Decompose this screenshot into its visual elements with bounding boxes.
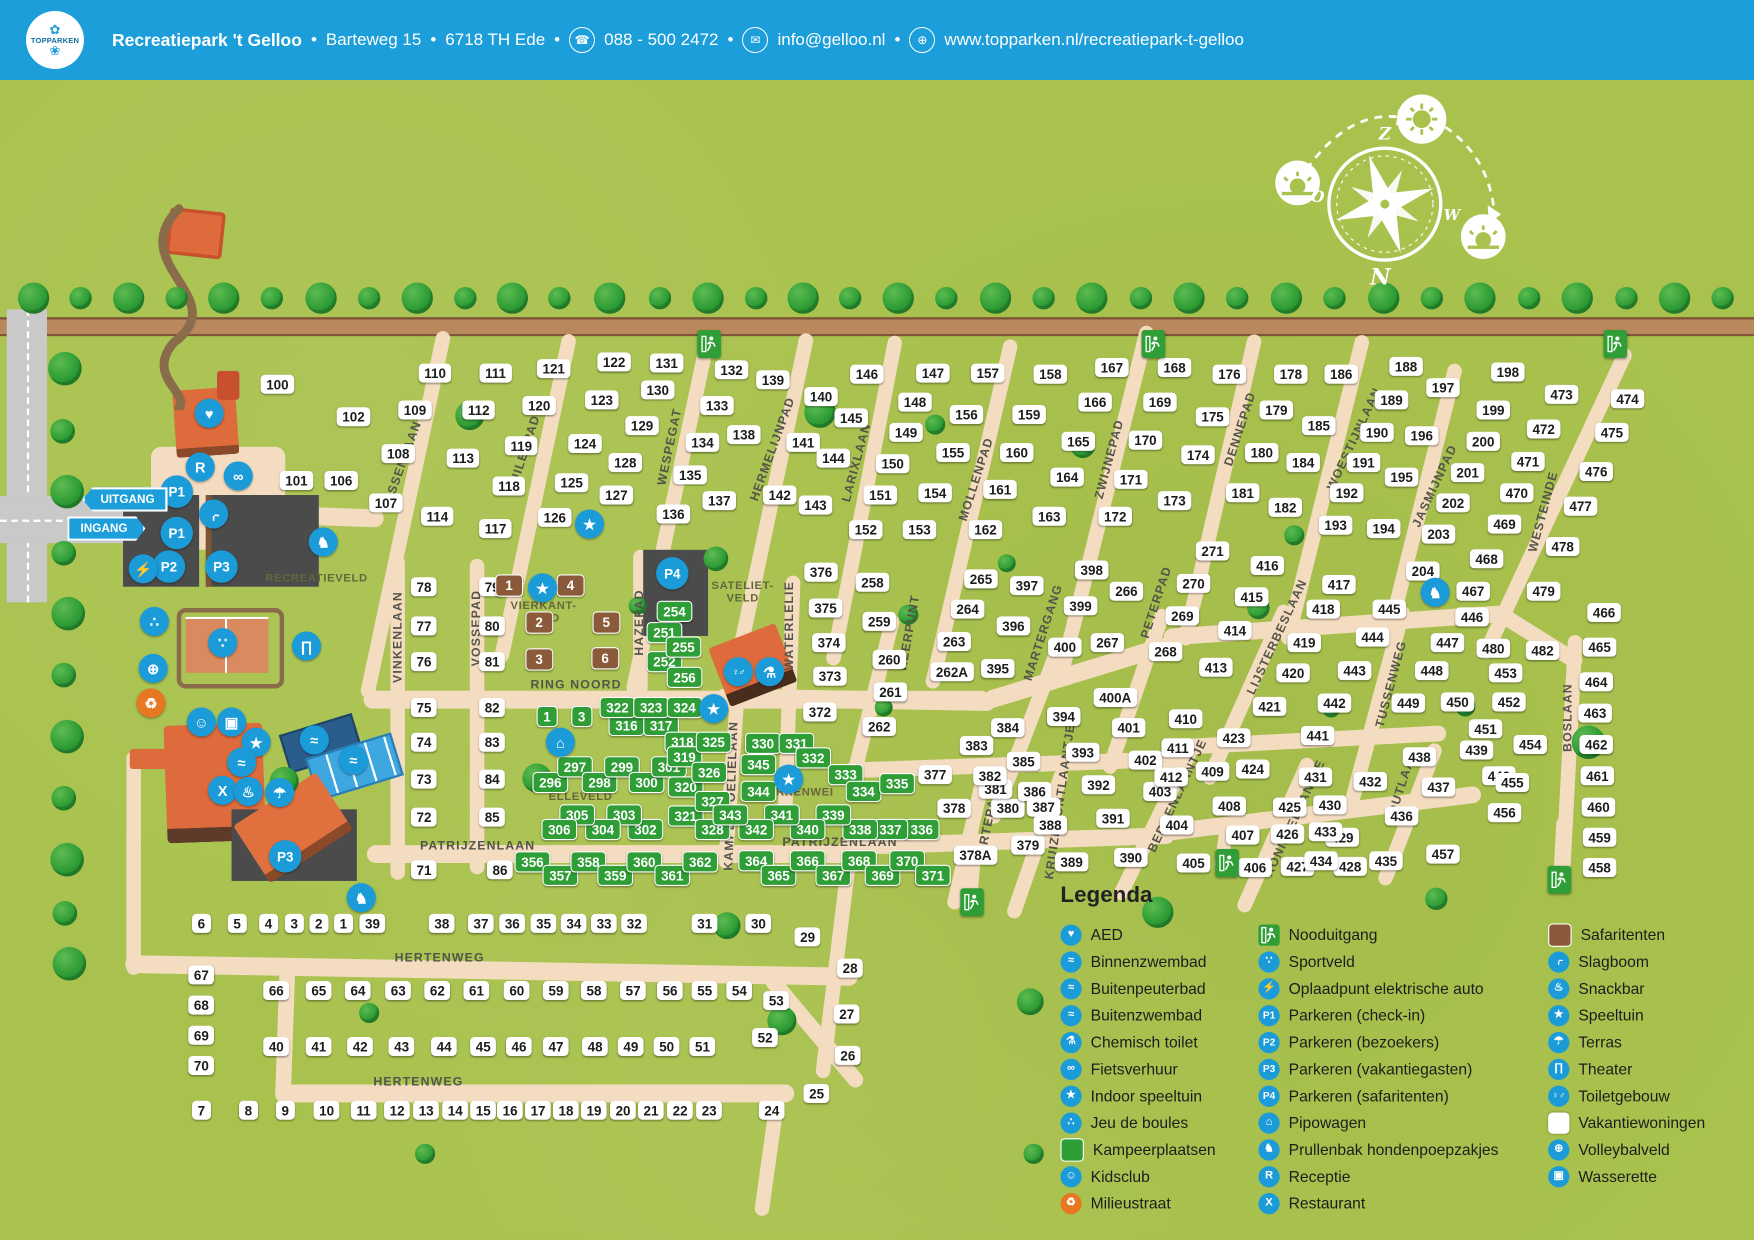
plot-24: 24 bbox=[759, 1101, 785, 1120]
legend-pipowagen-icon: ⌂ bbox=[1258, 1112, 1279, 1133]
legend-label: Parkeren (bezoekers) bbox=[1289, 1033, 1440, 1051]
road-segment bbox=[126, 751, 141, 975]
plot-413: 413 bbox=[1199, 658, 1233, 677]
plot-40: 40 bbox=[263, 1037, 289, 1056]
plot-61: 61 bbox=[463, 981, 489, 1000]
plot-176: 176 bbox=[1213, 365, 1247, 384]
legend-column-3: Safaritenten⌌Slagboom♨Snackbar★Speeltuin… bbox=[1548, 921, 1705, 1189]
plot-165: 165 bbox=[1062, 432, 1096, 451]
plot-43: 43 bbox=[389, 1037, 415, 1056]
plot-267: 267 bbox=[1091, 633, 1125, 652]
nooduitgang-icon bbox=[1215, 849, 1238, 877]
plot-462: 462 bbox=[1579, 735, 1613, 754]
plot-421: 421 bbox=[1253, 697, 1287, 716]
plot-22: 22 bbox=[667, 1101, 693, 1120]
binnenzwembad-icon: ≈ bbox=[227, 748, 256, 777]
tree-icon bbox=[51, 663, 76, 688]
plot-127: 127 bbox=[600, 485, 634, 504]
nooduitgang-icon bbox=[1604, 330, 1627, 358]
header-contact-line: Recreatiepark 't Gelloo • Barteweg 15 • … bbox=[112, 27, 1244, 53]
plot-375: 375 bbox=[809, 598, 843, 617]
plot-433: 433 bbox=[1309, 822, 1343, 841]
plot-344: 344 bbox=[740, 781, 776, 802]
plot-42: 42 bbox=[347, 1037, 373, 1056]
tree-icon bbox=[53, 947, 87, 981]
tree-icon bbox=[1024, 1144, 1044, 1164]
plot-147: 147 bbox=[916, 364, 950, 383]
legend-label: Volleybalveld bbox=[1578, 1140, 1669, 1158]
plot-2: 2 bbox=[309, 914, 328, 933]
legend-item-aed: ♥AED bbox=[1060, 921, 1215, 948]
plot-48: 48 bbox=[582, 1037, 608, 1056]
plot-330: 330 bbox=[745, 733, 781, 754]
plot-107: 107 bbox=[369, 493, 403, 512]
plot-150: 150 bbox=[876, 454, 910, 473]
legend-item-slagboom: ⌌Slagboom bbox=[1548, 948, 1705, 975]
plot-73: 73 bbox=[411, 770, 437, 789]
legend-parkeren-bezoekers--icon: P2 bbox=[1258, 1031, 1279, 1052]
plot-19: 19 bbox=[581, 1101, 607, 1120]
plot-416: 416 bbox=[1251, 556, 1285, 575]
plot-164: 164 bbox=[1050, 468, 1084, 487]
legend-item-parkeren-safaritenten-: P4Parkeren (safaritenten) bbox=[1258, 1082, 1498, 1109]
legend-label: Slagboom bbox=[1578, 953, 1649, 971]
plot-405: 405 bbox=[1177, 854, 1211, 873]
park-map: Z N O W UITGANG INGANG DASSENLAANUILENPA… bbox=[0, 80, 1754, 1240]
tree-icon bbox=[358, 287, 380, 309]
plot-390: 390 bbox=[1114, 848, 1148, 867]
plot-324: 324 bbox=[667, 697, 703, 718]
legend-label: Buitenzwembad bbox=[1091, 1006, 1202, 1024]
legend-label: Milieustraat bbox=[1091, 1194, 1171, 1212]
plot-263: 263 bbox=[937, 632, 971, 651]
plot-406: 406 bbox=[1238, 858, 1272, 877]
legend-label: Vakantiewoningen bbox=[1578, 1114, 1705, 1132]
legend-label: Indoor speeltuin bbox=[1091, 1087, 1202, 1105]
legend-prullenbak-hondenpoepzakjes-icon: ♞ bbox=[1258, 1139, 1279, 1160]
street-label-hertenweg: HERTENWEG bbox=[395, 951, 485, 964]
plot-100: 100 bbox=[261, 375, 295, 394]
plot-455: 455 bbox=[1496, 773, 1530, 792]
park-postal-city: 6718 TH Ede bbox=[445, 30, 545, 50]
plot-18: 18 bbox=[553, 1101, 579, 1120]
legend-column-1: ♥AED≈Binnenzwembad≈Buitenpeuterbad≈Buite… bbox=[1060, 921, 1215, 1216]
plot-36: 36 bbox=[499, 914, 525, 933]
plot-182: 182 bbox=[1268, 498, 1302, 517]
plot-203: 203 bbox=[1422, 525, 1456, 544]
plot-81: 81 bbox=[479, 652, 505, 671]
plot-53: 53 bbox=[763, 991, 789, 1010]
plot-3: 3 bbox=[285, 914, 304, 933]
road-segment bbox=[280, 1085, 795, 1103]
plot-259: 259 bbox=[862, 612, 896, 631]
slagboom-icon: ⌌ bbox=[199, 499, 228, 528]
plot-153: 153 bbox=[903, 520, 937, 539]
plot-52: 52 bbox=[752, 1028, 778, 1047]
plot-410: 410 bbox=[1169, 709, 1203, 728]
tree-icon bbox=[704, 546, 729, 571]
compass-rose: Z N O W bbox=[1311, 123, 1462, 290]
plot-385: 385 bbox=[1007, 752, 1041, 771]
plot-411: 411 bbox=[1161, 738, 1194, 757]
legend-item-nooduitgang: Nooduitgang bbox=[1258, 921, 1498, 948]
plot-456: 456 bbox=[1488, 803, 1522, 822]
legend-label: Sportveld bbox=[1289, 953, 1355, 971]
tree-icon bbox=[454, 287, 476, 309]
legend-label: Speeltuin bbox=[1578, 1006, 1643, 1024]
plot-68: 68 bbox=[188, 996, 214, 1015]
plot-82: 82 bbox=[479, 698, 505, 717]
plot-479: 479 bbox=[1527, 582, 1561, 601]
legend-label: Parkeren (check-in) bbox=[1289, 1006, 1426, 1024]
plot-184: 184 bbox=[1286, 453, 1320, 472]
park-website[interactable]: www.topparken.nl/recreatiepark-t-gelloo bbox=[944, 30, 1244, 50]
tree-icon bbox=[1284, 525, 1304, 545]
plot-77: 77 bbox=[411, 616, 437, 635]
plot-6: 6 bbox=[591, 647, 619, 669]
plot-325: 325 bbox=[696, 732, 732, 753]
tree-icon bbox=[18, 282, 49, 313]
plot-59: 59 bbox=[543, 981, 569, 1000]
plot-468: 468 bbox=[1470, 549, 1504, 568]
speeltuin-icon: ★ bbox=[575, 510, 604, 539]
plot-379: 379 bbox=[1011, 836, 1045, 855]
plot-102: 102 bbox=[337, 407, 371, 426]
plot-29: 29 bbox=[795, 927, 821, 946]
plot-426: 426 bbox=[1271, 824, 1305, 843]
plot-108: 108 bbox=[381, 444, 415, 463]
plot-262: 262 bbox=[862, 717, 896, 736]
plot-85: 85 bbox=[479, 808, 505, 827]
plot-20: 20 bbox=[610, 1101, 636, 1120]
toiletgebouw-icon: ♀♂ bbox=[724, 657, 753, 686]
legend-slagboom-icon: ⌌ bbox=[1548, 951, 1569, 972]
legend-item-fietsverhuur: ∞Fietsverhuur bbox=[1060, 1055, 1215, 1082]
plot-414: 414 bbox=[1218, 621, 1252, 640]
plot-374: 374 bbox=[812, 633, 846, 652]
legend-item-volleybalveld: ⊕Volleybalveld bbox=[1548, 1136, 1705, 1163]
legend-kampeerplaatsen-icon bbox=[1060, 1138, 1083, 1161]
plot-432: 432 bbox=[1353, 772, 1387, 791]
plot-110: 110 bbox=[419, 364, 452, 383]
tree-icon bbox=[935, 287, 957, 309]
plot-46: 46 bbox=[506, 1037, 532, 1056]
plot-336: 336 bbox=[904, 819, 940, 840]
plot-170: 170 bbox=[1129, 431, 1163, 450]
nooduitgang-icon bbox=[960, 888, 983, 916]
plot-372: 372 bbox=[803, 703, 837, 722]
phone-icon: ☎ bbox=[569, 27, 595, 53]
plot-430: 430 bbox=[1313, 795, 1347, 814]
plot-400: 400 bbox=[1048, 638, 1082, 657]
plot-51: 51 bbox=[689, 1037, 715, 1056]
legend-item-parkeren-check-in-: P1Parkeren (check-in) bbox=[1258, 1002, 1498, 1029]
plot-120: 120 bbox=[522, 396, 556, 415]
aed-icon: ♥ bbox=[195, 399, 224, 428]
legend-label: Parkeren (vakantiegasten) bbox=[1289, 1060, 1473, 1078]
street-label-hertenweg: HERTENWEG bbox=[373, 1076, 463, 1089]
plot-7: 7 bbox=[192, 1101, 211, 1120]
legend-label: Prullenbak hondenpoepzakjes bbox=[1289, 1140, 1499, 1158]
plot-425: 425 bbox=[1273, 798, 1307, 817]
plot-3: 3 bbox=[525, 648, 553, 670]
plot-55: 55 bbox=[692, 981, 718, 1000]
park-address: Barteweg 15 bbox=[326, 30, 421, 50]
plot-114: 114 bbox=[421, 507, 454, 526]
plot-180: 180 bbox=[1245, 443, 1279, 462]
plot-146: 146 bbox=[850, 365, 884, 384]
plot-60: 60 bbox=[504, 981, 530, 1000]
header-bar: ✿ TOPPARKEN ❀ Recreatiepark 't Gelloo • … bbox=[0, 0, 1754, 80]
plot-449: 449 bbox=[1392, 694, 1426, 713]
sportveld-icon: ∵ bbox=[208, 628, 237, 657]
legend-label: Restaurant bbox=[1289, 1194, 1366, 1212]
tree-icon bbox=[1173, 282, 1204, 313]
plot-452: 452 bbox=[1492, 692, 1526, 711]
plot-13: 13 bbox=[413, 1101, 439, 1120]
plot-394: 394 bbox=[1047, 707, 1081, 726]
plot-186: 186 bbox=[1324, 365, 1358, 384]
tree-icon bbox=[714, 912, 741, 939]
plot-122: 122 bbox=[597, 352, 631, 371]
plot-464: 464 bbox=[1579, 672, 1613, 691]
tree-icon bbox=[166, 287, 188, 309]
legend-indoor-speeltuin-icon: ★ bbox=[1060, 1085, 1081, 1106]
logo-mark-top: ✿ bbox=[50, 25, 61, 35]
tree-icon bbox=[594, 282, 625, 313]
plot-459: 459 bbox=[1583, 828, 1617, 847]
plot-201: 201 bbox=[1451, 463, 1485, 482]
legend-speeltuin-icon: ★ bbox=[1548, 1005, 1569, 1026]
plot-157: 157 bbox=[971, 364, 1005, 383]
legend-item-oplaadpunt-elektrische-auto: ⚡Oplaadpunt elektrische auto bbox=[1258, 975, 1498, 1002]
plot-10: 10 bbox=[314, 1101, 340, 1120]
nooduitgang-icon bbox=[1142, 330, 1165, 358]
legend-item-restaurant: XRestaurant bbox=[1258, 1190, 1498, 1217]
plot-190: 190 bbox=[1360, 423, 1394, 442]
plot-75: 75 bbox=[411, 698, 437, 717]
plot-71: 71 bbox=[411, 860, 437, 879]
plot-447: 447 bbox=[1431, 633, 1465, 652]
plot-269: 269 bbox=[1166, 606, 1200, 625]
tree-icon bbox=[402, 282, 433, 313]
plot-31: 31 bbox=[692, 914, 718, 933]
volleybalveld-icon: ⊕ bbox=[139, 654, 168, 683]
receptie-icon: R bbox=[186, 452, 215, 481]
plot-397: 397 bbox=[1010, 576, 1044, 595]
plot-171: 171 bbox=[1114, 470, 1148, 489]
plot-136: 136 bbox=[657, 505, 691, 524]
plot-450: 450 bbox=[1441, 692, 1475, 711]
buitenzwembad-icon: ≈ bbox=[339, 746, 368, 775]
legend-item-safaritenten: Safaritenten bbox=[1548, 921, 1705, 948]
plot-409: 409 bbox=[1196, 762, 1230, 781]
legend-item-speeltuin: ★Speeltuin bbox=[1548, 1002, 1705, 1029]
tree-icon bbox=[305, 282, 336, 313]
speeltuin-icon: ★ bbox=[528, 573, 557, 602]
legend-label: Fietsverhuur bbox=[1091, 1060, 1178, 1078]
compass-sun-graphic: Z N O W bbox=[1219, 80, 1745, 326]
tree-icon bbox=[649, 287, 671, 309]
plot-362: 362 bbox=[682, 851, 718, 872]
plot-467: 467 bbox=[1456, 582, 1490, 601]
plot-119: 119 bbox=[505, 436, 538, 455]
legend-chemisch-toilet-icon: ⚗ bbox=[1060, 1031, 1081, 1052]
tree-icon bbox=[839, 287, 861, 309]
plot-123: 123 bbox=[585, 390, 619, 409]
plot-345: 345 bbox=[740, 754, 776, 775]
plot-78: 78 bbox=[411, 577, 437, 596]
legend-label: Snackbar bbox=[1578, 979, 1644, 997]
plot-57: 57 bbox=[620, 981, 646, 1000]
plot-266: 266 bbox=[1110, 582, 1144, 601]
tree-icon bbox=[1130, 287, 1152, 309]
plot-8: 8 bbox=[239, 1101, 258, 1120]
plot-138: 138 bbox=[727, 425, 761, 444]
plot-438: 438 bbox=[1403, 747, 1437, 766]
plot-306: 306 bbox=[541, 819, 577, 840]
legend-buitenpeuterbad-icon: ≈ bbox=[1060, 978, 1081, 999]
plot-137: 137 bbox=[702, 491, 736, 510]
tree-icon bbox=[51, 786, 76, 811]
plot-152: 152 bbox=[849, 520, 883, 539]
plot-33: 33 bbox=[591, 914, 617, 933]
plot-398: 398 bbox=[1075, 560, 1109, 579]
plot-1: 1 bbox=[537, 706, 558, 727]
plot-49: 49 bbox=[618, 1037, 644, 1056]
plot-5: 5 bbox=[228, 914, 247, 933]
plot-420: 420 bbox=[1276, 663, 1310, 682]
plot-72: 72 bbox=[411, 808, 437, 827]
street-label-vinkenlaan: VINKENLAAN bbox=[392, 591, 405, 683]
plot-168: 168 bbox=[1158, 358, 1192, 377]
plot-58: 58 bbox=[581, 981, 607, 1000]
legend-item-sportveld: ∵Sportveld bbox=[1258, 948, 1498, 975]
plot-45: 45 bbox=[470, 1037, 496, 1056]
plot-436: 436 bbox=[1385, 807, 1419, 826]
plot-135: 135 bbox=[673, 465, 707, 484]
plot-419: 419 bbox=[1287, 633, 1321, 652]
plot-444: 444 bbox=[1356, 628, 1390, 647]
legend-restaurant-icon: X bbox=[1258, 1192, 1279, 1213]
legend-label: Receptie bbox=[1289, 1167, 1351, 1185]
plot-54: 54 bbox=[726, 981, 752, 1000]
plot-391: 391 bbox=[1096, 809, 1130, 828]
compass-letter-east: O bbox=[1311, 187, 1325, 206]
plot-261: 261 bbox=[874, 682, 908, 701]
plot-461: 461 bbox=[1581, 766, 1615, 785]
legend-label: Chemisch toilet bbox=[1091, 1033, 1198, 1051]
speeltuin-icon: ★ bbox=[774, 765, 803, 794]
tree-icon bbox=[692, 282, 723, 313]
buitenpeuterbad-icon: ≈ bbox=[300, 725, 329, 754]
plot-149: 149 bbox=[889, 423, 923, 442]
plot-434: 434 bbox=[1304, 851, 1338, 870]
tree-icon bbox=[745, 287, 767, 309]
legend-item-milieustraat: ♻Milieustraat bbox=[1060, 1190, 1215, 1217]
plot-173: 173 bbox=[1158, 491, 1192, 510]
legend-label: Kidsclub bbox=[1091, 1167, 1150, 1185]
plot-392: 392 bbox=[1082, 775, 1116, 794]
oplaadpunt-icon: ⚡ bbox=[129, 554, 158, 583]
plot-169: 169 bbox=[1143, 393, 1177, 412]
compass-letter-south: Z bbox=[1378, 123, 1392, 143]
plot-62: 62 bbox=[424, 981, 450, 1000]
legend-item-vakantiewoningen: Vakantiewoningen bbox=[1548, 1109, 1705, 1136]
plot-466: 466 bbox=[1587, 603, 1621, 622]
plot-332: 332 bbox=[795, 747, 831, 768]
plot-442: 442 bbox=[1318, 694, 1352, 713]
plot-143: 143 bbox=[799, 496, 833, 515]
plot-175: 175 bbox=[1196, 407, 1230, 426]
plot-448: 448 bbox=[1415, 661, 1449, 680]
fietsverhuur-icon: ∞ bbox=[224, 461, 253, 490]
park-phone: 088 - 500 2472 bbox=[604, 30, 718, 50]
legend-theater-icon: ∏ bbox=[1548, 1058, 1569, 1079]
uitgang-sign: UITGANG bbox=[83, 487, 168, 512]
legend-wasserette-icon: ▣ bbox=[1548, 1166, 1569, 1187]
legend-label: Terras bbox=[1578, 1033, 1622, 1051]
plot-131: 131 bbox=[650, 353, 684, 372]
plot-470: 470 bbox=[1500, 483, 1534, 502]
mail-icon: ✉ bbox=[742, 27, 768, 53]
tree-icon bbox=[69, 287, 91, 309]
legend-item-buitenpeuterbad: ≈Buitenpeuterbad bbox=[1060, 975, 1215, 1002]
plot-126: 126 bbox=[538, 508, 572, 527]
street-label-ring-noord: RING NOORD bbox=[530, 678, 621, 691]
plot-399: 399 bbox=[1064, 596, 1098, 615]
plot-140: 140 bbox=[804, 387, 838, 406]
plot-158: 158 bbox=[1034, 365, 1068, 384]
plot-67: 67 bbox=[188, 965, 214, 984]
plot-378: 378 bbox=[937, 799, 971, 818]
plot-458: 458 bbox=[1583, 858, 1617, 877]
plot-418: 418 bbox=[1307, 600, 1341, 619]
tree-icon bbox=[925, 414, 945, 434]
terras-icon: ☂ bbox=[265, 778, 294, 807]
parkeren-p1-icon: P1 bbox=[161, 517, 193, 549]
theater-icon: ∏ bbox=[292, 631, 321, 660]
plot-132: 132 bbox=[715, 360, 749, 379]
legend-item-binnenzwembad: ≈Binnenzwembad bbox=[1060, 948, 1215, 975]
plot-380: 380 bbox=[991, 799, 1025, 818]
plot-195: 195 bbox=[1385, 468, 1419, 487]
plot-268: 268 bbox=[1149, 642, 1183, 661]
legend-label: Pipowagen bbox=[1289, 1114, 1366, 1132]
plot-396: 396 bbox=[997, 616, 1031, 635]
plot-423: 423 bbox=[1217, 728, 1251, 747]
legend-toiletgebouw-icon: ♀♂ bbox=[1548, 1085, 1569, 1106]
speeltuin-icon: ★ bbox=[699, 694, 728, 723]
plot-5: 5 bbox=[592, 611, 620, 633]
legend-item-theater: ∏Theater bbox=[1548, 1055, 1705, 1082]
legend-label: Parkeren (safaritenten) bbox=[1289, 1087, 1449, 1105]
plot-2: 2 bbox=[525, 611, 553, 633]
legend-terras-icon: ☂ bbox=[1548, 1031, 1569, 1052]
tree-icon bbox=[51, 597, 85, 631]
plot-382: 382 bbox=[973, 766, 1007, 785]
plot-384: 384 bbox=[991, 718, 1025, 737]
plot-258: 258 bbox=[856, 573, 890, 592]
legend-item-parkeren-bezoekers-: P2Parkeren (bezoekers) bbox=[1258, 1029, 1498, 1056]
plot-63: 63 bbox=[385, 981, 411, 1000]
plot-451: 451 bbox=[1469, 719, 1503, 738]
park-email[interactable]: info@gelloo.nl bbox=[777, 30, 885, 50]
plot-66: 66 bbox=[263, 981, 289, 1000]
plot-482: 482 bbox=[1526, 641, 1560, 660]
legend-item-pipowagen: ⌂Pipowagen bbox=[1258, 1109, 1498, 1136]
legend-vakantiewoningen-icon bbox=[1548, 1112, 1569, 1133]
